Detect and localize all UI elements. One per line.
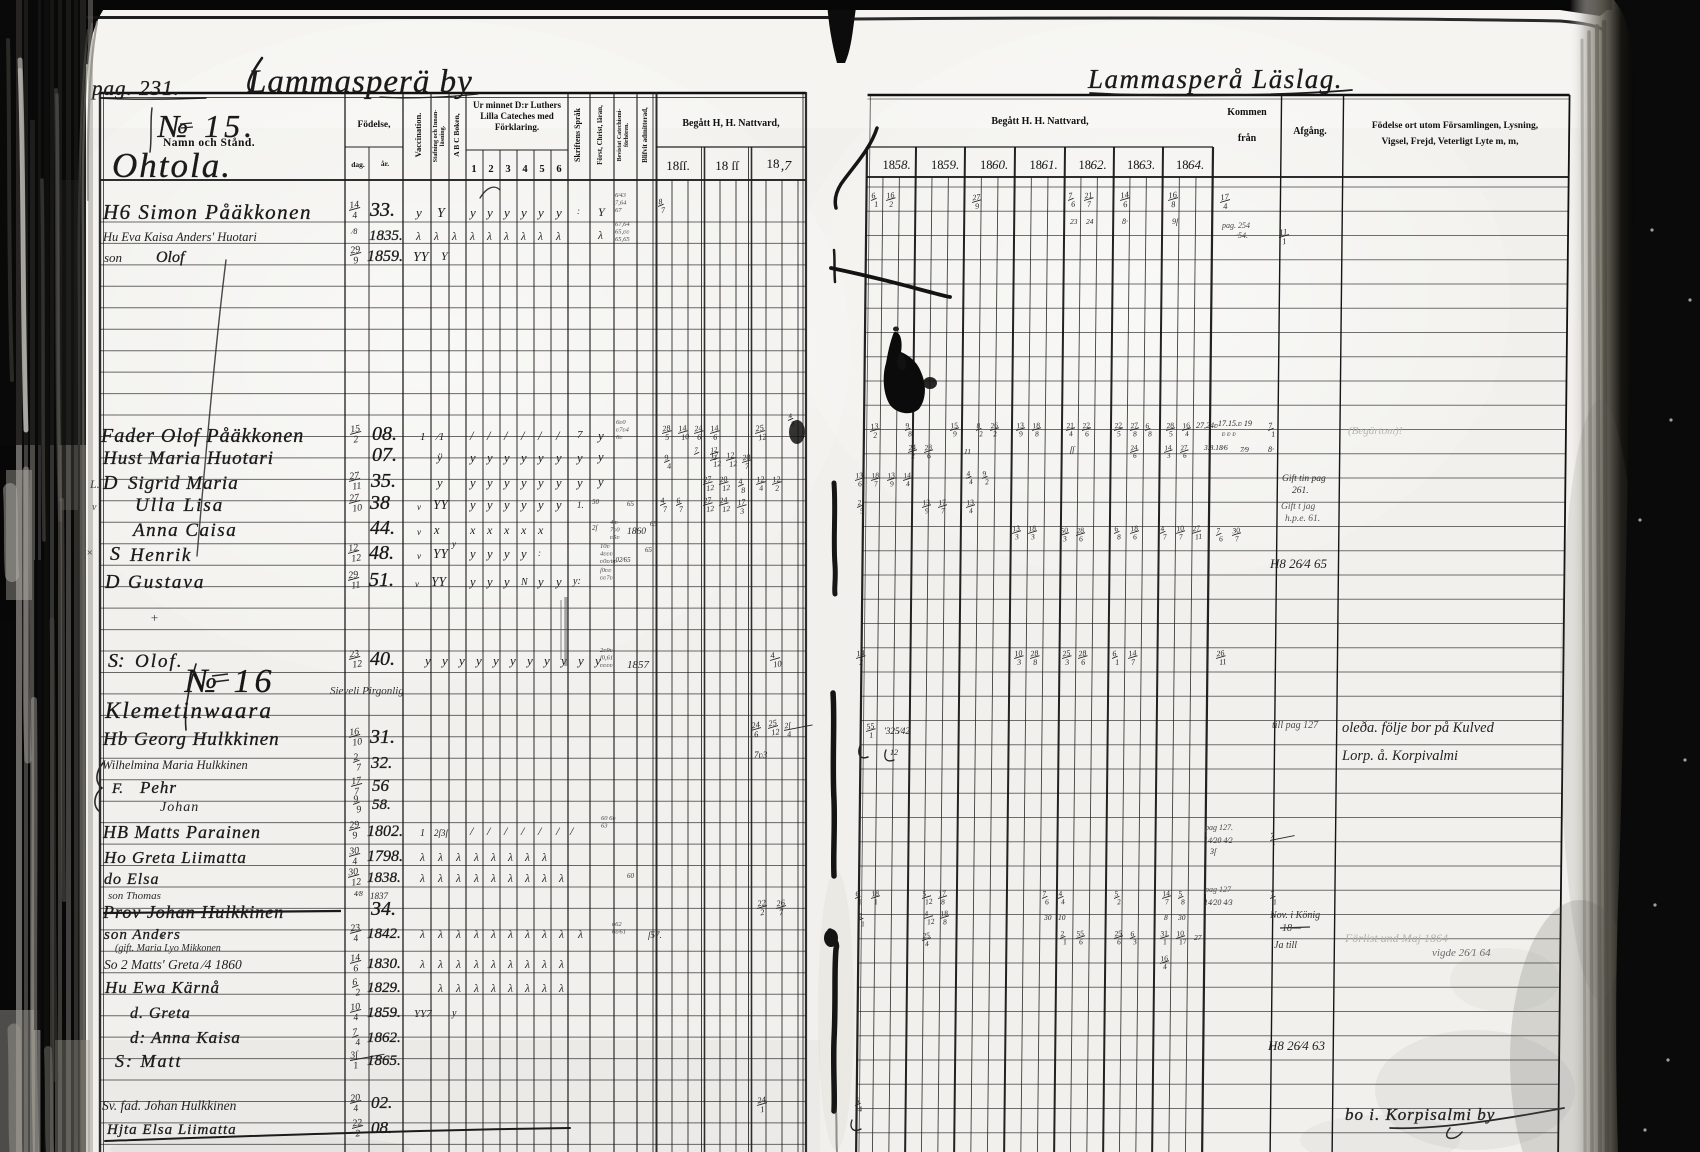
svg-text:34.: 34.: [370, 898, 396, 920]
svg-text:y: y: [536, 498, 544, 512]
svg-text:A B C Boken,: A B C Boken,: [452, 113, 461, 156]
svg-text:Hu Ewa Kärnå: Hu Ewa Kärnå: [104, 978, 220, 997]
svg-text:33.: 33.: [369, 199, 395, 221]
svg-text:Stafning och Innan-: Stafning och Innan-: [432, 110, 439, 163]
svg-text:38: 38: [369, 492, 390, 514]
svg-text:förhören.: förhören.: [624, 122, 630, 147]
svg-text:x: x: [469, 523, 476, 537]
svg-text:1842.: 1842.: [367, 926, 401, 942]
svg-text:Begått H. H. Nattvard,: Begått H. H. Nattvard,: [991, 116, 1089, 127]
svg-text:ʋ7ʋ4: ʋ7ʋ4: [616, 427, 630, 434]
svg-text:51.: 51.: [369, 569, 394, 591]
svg-text:y: y: [554, 451, 562, 465]
svg-text:11: 11: [1219, 657, 1228, 667]
svg-text:Nov. i König: Nov. i König: [1269, 910, 1320, 921]
svg-text:Anna Caisa: Anna Caisa: [131, 520, 237, 541]
svg-text:dag.: dag.: [351, 160, 365, 169]
svg-text:67,64: 67,64: [615, 221, 630, 228]
svg-text:8·: 8·: [1268, 445, 1274, 454]
svg-text:Fader Olof Påäkkonen: Fader Olof Påäkkonen: [100, 425, 304, 447]
svg-text:14⁄20 4⁄3: 14⁄20 4⁄3: [1204, 898, 1233, 907]
svg-text:y: y: [485, 451, 493, 465]
svg-text:Bevistat Catechismi-: Bevistat Catechismi-: [617, 109, 623, 162]
svg-text:y: y: [554, 575, 562, 589]
svg-text:λ: λ: [537, 231, 543, 243]
svg-text:4,ʋ: 4,ʋ: [610, 519, 618, 526]
svg-text:Ohtola.: Ohtola.: [112, 146, 232, 185]
svg-text:λ: λ: [490, 959, 496, 971]
svg-text:y: y: [502, 476, 510, 490]
svg-text:8·: 8·: [1122, 217, 1128, 226]
svg-text:12: 12: [713, 459, 722, 469]
svg-text:10: 10: [681, 432, 690, 442]
svg-text:YY: YY: [433, 546, 450, 561]
svg-text:y: y: [502, 575, 510, 589]
svg-text:60.: 60.: [992, 157, 1008, 172]
svg-text:40.: 40.: [370, 648, 395, 670]
svg-text:λ: λ: [597, 230, 603, 242]
svg-text:24: 24: [1086, 217, 1094, 226]
svg-text:⁄1: ⁄1: [435, 431, 444, 443]
svg-text:7ʋ3: 7ʋ3: [754, 750, 768, 760]
svg-text:18: 18: [883, 158, 896, 172]
svg-text:Gift t jag: Gift t jag: [1281, 501, 1316, 512]
svg-text:10: 10: [352, 502, 363, 514]
svg-text:1859.: 1859.: [367, 248, 403, 265]
svg-text:D: D: [102, 472, 118, 494]
svg-text:YY: YY: [431, 574, 448, 589]
svg-text:till pag 127: till pag 127: [1272, 720, 1319, 731]
svg-text:λ: λ: [419, 959, 425, 971]
svg-text:y: y: [485, 476, 493, 490]
svg-text:L.: L.: [89, 477, 100, 491]
svg-text:y: y: [596, 475, 604, 489]
svg-text:1860: 1860: [627, 527, 646, 537]
svg-text:y: y: [457, 653, 465, 668]
svg-text:10ʋ: 10ʋ: [600, 543, 610, 550]
svg-text:λ: λ: [433, 231, 439, 243]
svg-text:18—: 18—: [1282, 923, 1301, 934]
svg-text:λ: λ: [437, 852, 443, 864]
svg-text:7: 7: [577, 429, 583, 441]
svg-text:v: v: [92, 502, 97, 513]
svg-text:y: y: [485, 547, 493, 561]
svg-text:59.: 59.: [943, 157, 959, 172]
svg-text:ʋʋ7ʋ: ʋʋ7ʋ: [600, 575, 613, 582]
svg-text:58.: 58.: [895, 157, 911, 172]
svg-text:y: y: [485, 498, 493, 512]
svg-text:λ: λ: [558, 929, 564, 941]
svg-text:λ: λ: [524, 873, 530, 885]
svg-text:27,24ʋ: 27,24ʋ: [1196, 421, 1218, 430]
svg-text:y: y: [451, 539, 456, 549]
svg-text:λ: λ: [524, 929, 530, 941]
svg-text:56: 56: [372, 776, 390, 795]
svg-text:1: 1: [420, 828, 425, 839]
svg-text::: :: [577, 206, 580, 216]
svg-text:N: N: [520, 577, 529, 588]
svg-text:λ: λ: [415, 231, 421, 243]
svg-text:λ: λ: [541, 983, 547, 995]
svg-text:Hust Maria Huotari: Hust Maria Huotari: [102, 448, 274, 469]
svg-text:12: 12: [722, 483, 731, 493]
svg-text:λ: λ: [507, 929, 513, 941]
svg-text:Lammasperå Läslag.: Lammasperå Läslag.: [1087, 64, 1343, 94]
svg-text:4: 4: [522, 164, 528, 175]
svg-text:λ: λ: [419, 929, 425, 941]
svg-text:Hjta Elsa Liimatta: Hjta Elsa Liimatta: [106, 1122, 237, 1138]
svg-text:64.: 64.: [1188, 157, 1204, 172]
svg-text:02.: 02.: [371, 1093, 392, 1112]
svg-text:S:: S:: [108, 650, 125, 672]
svg-text:S: S: [110, 543, 120, 565]
svg-text:35.: 35.: [370, 470, 396, 492]
svg-text:pag. 254: pag. 254: [1221, 221, 1250, 230]
svg-text:y: y: [491, 653, 499, 668]
svg-text:1: 1: [471, 164, 476, 175]
svg-text:18: 18: [980, 158, 993, 172]
svg-text:y: y: [468, 575, 476, 589]
svg-text:60 6ʋ: 60 6ʋ: [601, 815, 616, 822]
svg-text:λ: λ: [577, 929, 583, 941]
svg-text:y: y: [423, 653, 431, 668]
svg-text:18 ſſ: 18 ſſ: [715, 158, 740, 173]
svg-text:λ: λ: [520, 231, 526, 243]
svg-text:67: 67: [615, 207, 622, 214]
svg-text:Henrik: Henrik: [129, 545, 192, 566]
svg-text:y: y: [508, 653, 516, 668]
svg-text:λ: λ: [507, 873, 513, 885]
svg-text:YY: YY: [413, 250, 431, 265]
svg-text:1829.: 1829.: [367, 980, 401, 996]
svg-text:oleða. följe bor på Kulved: oleða. följe bor på Kulved: [1342, 720, 1495, 736]
svg-text:12: 12: [706, 504, 715, 514]
svg-text:58.: 58.: [372, 797, 391, 813]
svg-text:Sigrid Maria: Sigrid Maria: [128, 473, 239, 494]
svg-text:Ur minnet D:r Luthers: Ur minnet D:r Luthers: [473, 100, 561, 110]
svg-text:Skriftens Språk: Skriftens Språk: [573, 107, 582, 162]
svg-text:y: y: [451, 1008, 457, 1019]
svg-text:261.: 261.: [1292, 486, 1309, 496]
svg-text:y: y: [435, 476, 443, 490]
svg-text:12: 12: [351, 552, 362, 564]
svg-text:Ho Greta Liimatta: Ho Greta Liimatta: [103, 848, 247, 867]
svg-text:λ: λ: [490, 929, 496, 941]
svg-text:14⁄20 4⁄2: 14⁄20 4⁄2: [1204, 836, 1233, 845]
svg-text:·54.: ·54.: [1236, 231, 1248, 240]
svg-text:y: y: [519, 476, 527, 490]
svg-text:y: y: [502, 451, 510, 465]
svg-text:ʋ ʋ ʋ: ʋ ʋ ʋ: [1222, 430, 1236, 438]
svg-text:y: y: [468, 451, 476, 465]
svg-text:Olof.: Olof.: [135, 651, 184, 672]
svg-text:λ: λ: [558, 873, 564, 885]
svg-text:27: 27: [1194, 933, 1202, 942]
svg-text:1865.: 1865.: [367, 1053, 401, 1069]
svg-text:y: y: [502, 547, 510, 561]
svg-text:YY7: YY7: [414, 1008, 432, 1020]
svg-text:λ: λ: [473, 873, 479, 885]
svg-text:λ: λ: [541, 929, 547, 941]
svg-text:år.: år.: [381, 159, 389, 168]
svg-text:Gift tin pag: Gift tin pag: [1282, 473, 1326, 484]
svg-text:S: Matt: S: Matt: [115, 1051, 183, 1071]
svg-text:λ: λ: [507, 983, 513, 995]
svg-text:Födelse,: Födelse,: [358, 120, 392, 130]
svg-text:y: y: [554, 476, 562, 490]
svg-text:Ulla Lisa: Ulla Lisa: [135, 495, 224, 516]
svg-text:y: y: [502, 205, 510, 220]
svg-text:Gustava: Gustava: [128, 572, 205, 593]
svg-text:y: y: [554, 498, 562, 512]
svg-text:λ: λ: [490, 983, 496, 995]
svg-text:2ʋ9ʋ: 2ʋ9ʋ: [600, 647, 613, 654]
svg-text:y: y: [474, 653, 482, 668]
svg-text:32.: 32.: [370, 753, 392, 772]
svg-text:y: y: [502, 498, 510, 512]
svg-text:102⁄65: 102⁄65: [612, 556, 631, 564]
svg-text:F.: F.: [111, 781, 123, 797]
svg-text:y: y: [468, 547, 476, 561]
svg-text:30: 30: [1177, 913, 1186, 922]
svg-text:6ʋ⁄61: 6ʋ⁄61: [612, 929, 626, 936]
svg-text:v: v: [415, 579, 419, 589]
svg-text:2ſ3ſ: 2ſ3ſ: [434, 828, 450, 838]
svg-text:från: från: [1238, 133, 1257, 144]
svg-text:x: x: [433, 523, 440, 537]
svg-text:v: v: [417, 527, 421, 537]
svg-text:λ: λ: [451, 231, 457, 243]
svg-text:Kommen: Kommen: [1227, 107, 1267, 118]
svg-text:y: y: [536, 451, 544, 465]
svg-text:y: y: [554, 205, 562, 220]
svg-text:Lammasperä by: Lammasperä by: [247, 64, 473, 100]
svg-text:12: 12: [926, 916, 935, 926]
svg-text:10: 10: [352, 736, 363, 748]
svg-text:λ: λ: [455, 983, 461, 995]
svg-text:λ: λ: [437, 873, 443, 885]
svg-text:65: 65: [645, 546, 653, 554]
svg-text:y: y: [468, 476, 476, 490]
svg-text:ʋ62: ʋ62: [612, 921, 622, 928]
svg-text:10: 10: [1058, 913, 1066, 922]
svg-text:6⁄43: 6⁄43: [615, 192, 627, 199]
svg-text:λ: λ: [541, 873, 547, 885]
svg-text:18: 18: [767, 156, 780, 171]
svg-text:λ: λ: [524, 959, 530, 971]
svg-text:y: y: [519, 547, 527, 561]
svg-text:23: 23: [1070, 217, 1078, 226]
svg-text:λ: λ: [507, 959, 513, 971]
svg-text:08.: 08.: [371, 1118, 392, 1137]
svg-text:YY: YY: [433, 497, 450, 512]
svg-text:65: 65: [627, 500, 635, 508]
svg-text:y: y: [519, 205, 527, 220]
svg-text:60: 60: [627, 872, 635, 880]
svg-text:λ: λ: [524, 852, 530, 864]
svg-text:17.15.ʋ 19: 17.15.ʋ 19: [1218, 419, 1252, 428]
svg-text:So 2 Matts' Greta ⁄4 1860: So 2 Matts' Greta ⁄4 1860: [104, 957, 242, 972]
svg-text:λ: λ: [490, 873, 496, 885]
svg-text:18: 18: [1176, 158, 1189, 172]
svg-text:vigde 26⁄1 64: vigde 26⁄1 64: [1432, 947, 1491, 959]
svg-text:12: 12: [706, 483, 715, 493]
svg-text:17: 17: [1178, 936, 1187, 946]
svg-text:ÿ: ÿ: [436, 450, 443, 464]
svg-text:Förlist und Maj 1864: Förlist und Maj 1864: [1344, 931, 1448, 945]
svg-text:h.p.e. 61.: h.p.e. 61.: [1285, 514, 1320, 524]
svg-text:λ: λ: [419, 873, 425, 885]
svg-text:⁄8: ⁄8: [350, 227, 357, 236]
svg-text:λ: λ: [455, 852, 461, 864]
svg-text:Sieveli Pirgonlig: Sieveli Pirgonlig: [330, 685, 404, 697]
svg-text:y: y: [485, 205, 493, 220]
svg-text:λ: λ: [507, 852, 513, 864]
svg-text:3.8.18⁄6: 3.8.18⁄6: [1203, 443, 1228, 452]
svg-text:63: 63: [601, 823, 608, 830]
svg-text:1835.: 1835.: [369, 228, 403, 244]
svg-text:λ: λ: [437, 929, 443, 941]
svg-text:1802.: 1802.: [367, 823, 403, 840]
svg-text:18ſſ.: 18ſſ.: [666, 158, 689, 173]
svg-text:+: +: [150, 610, 159, 625]
svg-text:λ: λ: [541, 959, 547, 971]
svg-text:61.: 61.: [1042, 157, 1058, 172]
svg-text:2: 2: [488, 164, 493, 175]
svg-text:y: y: [414, 205, 422, 220]
svg-text:y: y: [575, 476, 583, 490]
svg-text:(gift. Maria Lyo Mikkonen: (gift. Maria Lyo Mikkonen: [115, 943, 221, 954]
svg-text:H8 26⁄4 63: H8 26⁄4 63: [1267, 1038, 1326, 1053]
svg-text:λ: λ: [473, 852, 479, 864]
svg-text:ſ0ʋʋ: ſ0ʋʋ: [600, 567, 611, 574]
svg-text:Vigsel, Frejd, Veterligt Lyte: Vigsel, Frejd, Veterligt Lyte m, m,: [1382, 137, 1520, 147]
svg-text:1.: 1.: [577, 500, 584, 510]
svg-text:λ: λ: [486, 231, 492, 243]
svg-text:1: 1: [420, 431, 426, 443]
svg-text:12: 12: [729, 459, 738, 469]
svg-text:Födelse ort utom Församlingen,: Födelse ort utom Församlingen, Lysning,: [1372, 121, 1539, 131]
svg-text:bo i. Korpisalmi by: bo i. Korpisalmi by: [1345, 1105, 1495, 1124]
svg-text:y: y: [519, 498, 527, 512]
svg-text:H8 26⁄4 65: H8 26⁄4 65: [1269, 556, 1328, 571]
svg-text:1859.: 1859.: [367, 1005, 401, 1021]
svg-text:Hb Georg Hulkkinen: Hb Georg Hulkkinen: [102, 729, 280, 750]
svg-text:v: v: [417, 551, 421, 561]
svg-text:Lilla Cateches med: Lilla Cateches med: [480, 111, 554, 121]
svg-text:31.: 31.: [369, 726, 395, 748]
svg-text:y: y: [596, 428, 604, 443]
svg-text:λ: λ: [455, 959, 461, 971]
svg-text:son Thomas: son Thomas: [108, 890, 161, 902]
svg-text:y: y: [596, 450, 604, 464]
svg-text:Förklaring.: Förklaring.: [495, 122, 539, 132]
svg-text:Ja till: Ja till: [1274, 940, 1297, 951]
svg-text:12: 12: [890, 748, 898, 757]
svg-text:1862.: 1862.: [367, 1030, 401, 1046]
svg-text:λ: λ: [437, 983, 443, 995]
svg-text:son: son: [104, 250, 122, 265]
svg-text:12: 12: [352, 658, 363, 670]
svg-text:1838.: 1838.: [367, 870, 401, 886]
svg-text:son Anders: son Anders: [104, 927, 181, 943]
svg-text:y: y: [525, 653, 533, 668]
svg-text:18: 18: [1030, 158, 1043, 172]
svg-text:30: 30: [1043, 913, 1052, 922]
svg-text:62.: 62.: [1091, 157, 1107, 172]
svg-text:63.: 63.: [1139, 157, 1155, 172]
svg-text:λ: λ: [490, 852, 496, 864]
svg-text:Begått H, H. Nattvard,: Begått H, H. Nattvard,: [682, 118, 780, 129]
svg-text:4ʋʋʋ: 4ʋʋʋ: [600, 551, 613, 558]
svg-text:y: y: [536, 476, 544, 490]
svg-text:Johan: Johan: [160, 800, 199, 815]
svg-text:7,64: 7,64: [615, 200, 627, 207]
svg-text:11: 11: [351, 579, 362, 591]
svg-text:4⁄8: 4⁄8: [354, 889, 363, 898]
svg-text:1798.: 1798.: [367, 848, 403, 865]
svg-text:ſ57.: ſ57.: [648, 930, 662, 940]
svg-text:65,65: 65,65: [615, 236, 630, 243]
svg-text:d: Anna Kaisa: d: Anna Kaisa: [130, 1028, 241, 1047]
svg-text:18: 18: [1127, 158, 1140, 172]
svg-text:,7: ,7: [781, 159, 793, 174]
svg-text:d. Greta: d. Greta: [130, 1005, 191, 1022]
svg-text:12: 12: [722, 504, 731, 514]
svg-text:6: 6: [556, 164, 561, 175]
svg-text:y: y: [542, 653, 550, 668]
svg-text:11: 11: [352, 480, 363, 492]
svg-text:48.: 48.: [369, 542, 394, 564]
svg-text:y: y: [536, 205, 544, 220]
svg-text:Hu Eva Kaisa Anders' Huotari: Hu Eva Kaisa Anders' Huotari: [102, 230, 257, 244]
svg-text:'325⁄42: '325⁄42: [884, 726, 910, 736]
svg-text:y: y: [576, 653, 584, 668]
svg-text:18: 18: [931, 158, 944, 172]
svg-text:(Begärtom)!: (Begärtom)!: [1348, 425, 1403, 437]
svg-text:λ: λ: [455, 873, 461, 885]
svg-text:Afgång.: Afgång.: [1293, 126, 1327, 137]
svg-text:Lorp. å. Korpivalmi: Lorp. å. Korpivalmi: [1341, 748, 1458, 764]
svg-text:Sv. fad. Johan Hulkkinen: Sv. fad. Johan Hulkkinen: [102, 1098, 237, 1113]
svg-text:Först, Christ, läran,: Först, Christ, läran,: [596, 105, 604, 165]
svg-text:11: 11: [964, 447, 971, 456]
svg-text:λ: λ: [558, 959, 564, 971]
svg-text:y: y: [575, 451, 583, 465]
svg-text:65,ʋʋ: 65,ʋʋ: [615, 229, 630, 236]
svg-text:5: 5: [539, 164, 544, 175]
svg-text:x: x: [503, 523, 510, 537]
svg-text:y: y: [440, 653, 448, 668]
svg-text:8: 8: [1164, 913, 1168, 922]
svg-text:v: v: [417, 502, 421, 512]
svg-text:ʋʋʋʋ: ʋʋʋʋ: [600, 662, 613, 669]
svg-text:D: D: [104, 571, 120, 593]
svg-text:λ: λ: [455, 929, 461, 941]
svg-text:6ʋ0: 6ʋ0: [616, 419, 626, 426]
svg-text:×: ×: [86, 547, 93, 559]
svg-text:Klemetinwaara: Klemetinwaara: [104, 698, 273, 723]
svg-text:x: x: [486, 523, 493, 537]
svg-text:y: y: [536, 575, 544, 589]
svg-text:λ: λ: [473, 983, 479, 995]
svg-text:Olof: Olof: [156, 249, 187, 266]
svg-text:ʋ5ʋ: ʋ5ʋ: [610, 534, 620, 541]
svg-text:läsning.: läsning.: [439, 125, 446, 146]
svg-text:H6 Simon Påäkkonen: H6 Simon Påäkkonen: [102, 200, 312, 224]
svg-text:λ: λ: [524, 983, 530, 995]
svg-text:λ: λ: [555, 231, 561, 243]
